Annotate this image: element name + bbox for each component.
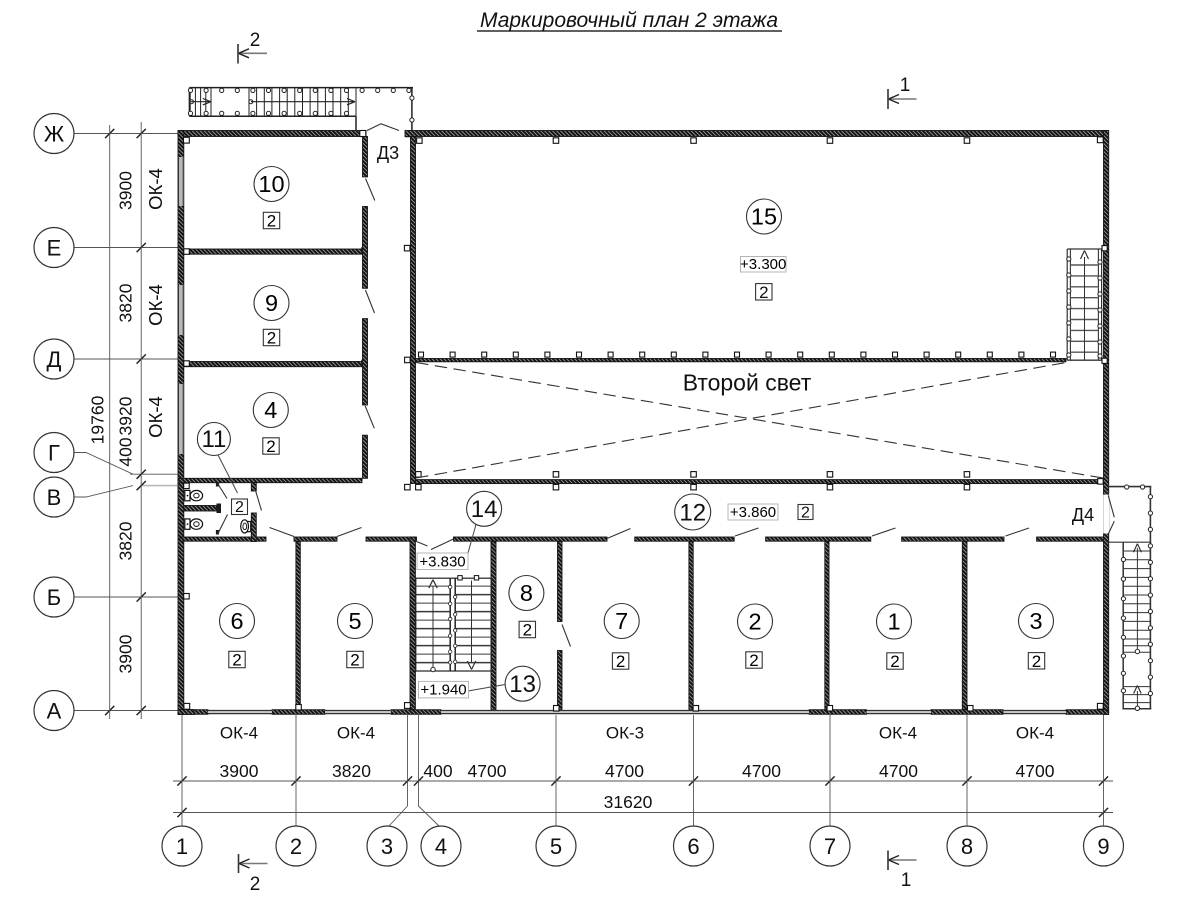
svg-text:5: 5 (348, 608, 361, 634)
svg-text:19760: 19760 (88, 395, 108, 444)
svg-text:3920: 3920 (116, 396, 136, 435)
svg-text:2: 2 (232, 651, 241, 670)
svg-text:4700: 4700 (742, 761, 781, 781)
svg-text:2: 2 (235, 499, 244, 516)
svg-text:4700: 4700 (1016, 761, 1055, 781)
svg-text:+1.940: +1.940 (420, 682, 466, 699)
svg-text:2: 2 (290, 834, 302, 859)
svg-text:2: 2 (266, 437, 275, 456)
svg-text:6: 6 (687, 834, 699, 859)
svg-text:+3.830: +3.830 (419, 553, 465, 570)
svg-text:5: 5 (550, 834, 562, 859)
svg-text:1: 1 (176, 834, 188, 859)
svg-text:15: 15 (751, 204, 777, 230)
svg-text:ОК-4: ОК-4 (879, 724, 917, 743)
svg-text:2: 2 (890, 652, 899, 671)
svg-text:Г: Г (48, 441, 60, 466)
svg-text:400: 400 (423, 761, 452, 781)
svg-text:ОК-4: ОК-4 (145, 168, 166, 210)
svg-text:7: 7 (824, 834, 836, 859)
svg-text:3900: 3900 (116, 634, 136, 673)
svg-text:11: 11 (201, 426, 226, 453)
svg-text:1: 1 (901, 870, 912, 891)
svg-text:9: 9 (265, 290, 278, 316)
svg-text:Б: Б (47, 585, 61, 610)
svg-text:8: 8 (961, 834, 973, 859)
svg-text:А: А (47, 699, 62, 724)
svg-text:ОК-4: ОК-4 (337, 724, 375, 743)
svg-text:Д4: Д4 (1072, 505, 1094, 525)
svg-text:2: 2 (250, 874, 261, 895)
svg-text:1: 1 (900, 75, 911, 96)
svg-text:12: 12 (679, 500, 706, 527)
svg-text:400: 400 (116, 437, 136, 466)
svg-text:2: 2 (523, 621, 532, 640)
svg-text:3820: 3820 (116, 521, 136, 560)
svg-text:ОК-4: ОК-4 (220, 724, 258, 743)
svg-text:Д3: Д3 (377, 143, 399, 163)
svg-text:2: 2 (759, 283, 768, 302)
svg-text:Маркировочный план 2 этажа: Маркировочный план 2 этажа (480, 9, 778, 32)
svg-text:2: 2 (1032, 652, 1041, 671)
svg-text:4: 4 (435, 834, 447, 859)
svg-text:4: 4 (264, 397, 277, 423)
svg-text:10: 10 (258, 171, 284, 197)
svg-text:2: 2 (616, 652, 625, 671)
svg-text:14: 14 (471, 496, 498, 523)
svg-text:2: 2 (350, 651, 359, 670)
svg-text:Д: Д (47, 347, 62, 372)
svg-text:4700: 4700 (605, 761, 644, 781)
svg-text:ОК-4: ОК-4 (145, 396, 166, 438)
svg-text:2: 2 (267, 212, 276, 231)
svg-text:2: 2 (748, 609, 761, 635)
svg-text:13: 13 (509, 671, 536, 698)
svg-text:ОК-3: ОК-3 (606, 724, 644, 743)
svg-text:3820: 3820 (332, 761, 371, 781)
svg-text:+3.860: +3.860 (730, 504, 776, 521)
svg-text:6: 6 (230, 608, 243, 634)
svg-text:Второй свет: Второй свет (683, 370, 812, 396)
svg-text:9: 9 (1097, 834, 1109, 859)
svg-text:3900: 3900 (220, 761, 259, 781)
svg-text:2: 2 (250, 30, 261, 51)
svg-text:4700: 4700 (468, 761, 507, 781)
svg-text:ОК-4: ОК-4 (145, 284, 166, 326)
svg-text:2: 2 (749, 651, 758, 670)
svg-text:2: 2 (801, 505, 810, 522)
svg-text:Е: Е (47, 236, 62, 261)
svg-text:В: В (47, 485, 62, 510)
svg-text:2: 2 (267, 329, 276, 348)
svg-text:7: 7 (615, 608, 628, 634)
svg-text:3: 3 (1029, 608, 1042, 634)
svg-text:3900: 3900 (116, 171, 136, 210)
svg-text:3820: 3820 (116, 283, 136, 322)
svg-text:31620: 31620 (604, 792, 653, 812)
svg-text:ОК-4: ОК-4 (1016, 724, 1054, 743)
svg-text:Ж: Ж (44, 122, 65, 147)
svg-text:1: 1 (887, 609, 900, 635)
svg-text:+3.300: +3.300 (740, 256, 786, 273)
svg-text:4700: 4700 (879, 761, 918, 781)
svg-text:3: 3 (381, 834, 393, 859)
svg-text:8: 8 (520, 580, 533, 606)
